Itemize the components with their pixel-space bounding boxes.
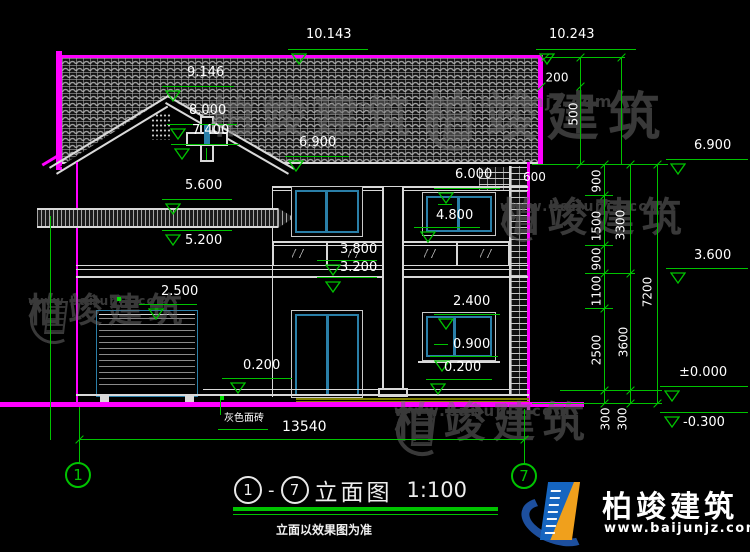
plinth-top-line [203,389,529,390]
level-text-±0.000: ±0.000 [679,366,727,380]
railing-post-4 [508,241,510,266]
dim-text-2500: 2500 [590,335,603,366]
title-axis-from: 1 [243,481,253,499]
level-text-5.200: 5.200 [185,234,222,248]
railing-glass-hatch-3 [424,249,437,258]
roof-left-fascia [56,51,62,170]
elevation-drawing-canvas: 1 7 1 - 7 立面图 1:100 立面以效果图为准 柏竣建筑 www.ba… [0,0,750,552]
level-text-10.143: 10.143 [306,28,352,42]
dim-text-overall-width: 13540 [282,420,327,435]
level-marker-icon [230,379,246,398]
brand-logo: 柏竣建筑 www.baijunjz.com [518,480,750,550]
dimension-line [220,398,221,415]
level-marker-icon [174,145,190,164]
dim-text-7200: 7200 [641,277,654,308]
level-marker-icon [664,387,680,406]
dim-chain-line [604,164,605,403]
dim-text-1100: 1100 [590,276,603,307]
axis-bubble-left-label: 1 [73,466,83,484]
level-text-3.200: 3.200 [340,261,377,275]
watermark-url-text: www.baijunjz.com [394,402,571,422]
floor-slab-line-3 [76,276,528,278]
title-axis-to: 7 [290,481,300,499]
title-axis-to-circle: 7 [281,476,309,504]
level-text-2.400: 2.400 [453,295,490,309]
level-text-6.900: 6.900 [299,136,336,150]
level-text-0.200: 0.200 [243,359,280,373]
level-marker-icon [420,228,436,247]
dimension-line [532,164,668,165]
entry-door-mullion [326,314,329,396]
wall-base-line [76,394,529,396]
level-text-9.146: 9.146 [187,66,224,80]
dim-text-600: 600 [523,171,546,184]
level-marker-icon [165,87,181,106]
level-marker-icon [438,189,454,208]
level-marker-icon [664,413,680,432]
title-note: 立面以效果图为准 [276,521,372,538]
level-text-6.900: 6.900 [694,139,731,153]
dimension-line [560,390,662,391]
title-underline-thin [233,514,498,515]
dimension-line [532,403,662,404]
watermark-url-text: www.baijunjz.com [500,198,665,216]
level-text--0.300: -0.300 [683,416,725,430]
level-marker-icon [325,278,341,297]
grip-dot [220,396,224,400]
level-text-3.600: 3.600 [694,249,731,263]
watermark-url-text: www.baijunjz.com [210,96,387,116]
dim-text-500: 500 [567,103,580,126]
level-text-8.000: 8.000 [189,104,226,118]
dimension-line [50,216,51,440]
railing-post-1 [272,241,274,266]
level-marker-icon [165,231,181,250]
level-marker-icon [170,125,186,144]
brand-logo-url: www.baijunjz.com [604,521,750,536]
level-text-4.800: 4.800 [436,209,473,223]
level-marker-icon [288,157,304,176]
dimension-line [206,148,207,160]
window-2f-left-mullion [325,190,328,233]
level-marker-icon [670,269,686,288]
title-scale: 1:100 [407,478,468,502]
railing-glass-hatch-4 [480,249,493,258]
dimension-line [585,195,613,196]
dimension-line [621,57,622,164]
dim-text-900: 900 [590,170,603,193]
brand-logo-name: 柏竣建筑 [602,482,738,526]
railing-post-3 [456,242,458,266]
railing-glass-hatch-1 [292,249,305,258]
level-text-5.600: 5.600 [185,179,222,193]
dim-text-200: 200 [546,71,569,84]
dim-chain-line [657,164,658,403]
level-marker-icon [438,315,454,334]
level-text-6.000: 6.000 [455,168,492,182]
dim-chain-line [630,164,631,403]
dimension-line [218,429,268,430]
dimension-line [434,344,448,345]
level-text-3.800: 3.800 [340,243,377,257]
gable-vent-grille [151,113,171,140]
dim-text-3300: 3300 [614,210,627,241]
drawing-title: 1 - 7 立面图 1:100 [234,476,467,504]
level-text-7.400: 7.400 [192,124,229,138]
axis-bubble-left: 1 [65,462,91,488]
dim-text-1500: 1500 [590,211,603,242]
material-label-gray-brick: 灰色面砖 [224,413,264,424]
dimension-line [585,308,613,309]
watermark-url-text: www.baijunjz.com [424,92,613,113]
title-name: 立面图 [315,473,393,507]
title-dash: - [268,480,275,501]
level-marker-icon [165,200,181,219]
dim-text-900: 900 [590,248,603,271]
level-marker-icon [291,50,307,69]
dim-text-300: 300 [616,408,629,431]
title-underline-thick [233,507,498,511]
garage-canopy [37,208,278,228]
dimension-line [79,407,80,463]
left-wall-edge [76,162,78,404]
level-marker-icon [670,160,686,179]
floor-slab-line-2 [76,269,528,270]
level-text-2.500: 2.500 [161,285,198,299]
dimension-line [79,439,525,440]
floor-slab-line-1 [76,265,528,266]
level-marker-icon [539,50,555,69]
dimension-line [585,245,613,246]
facade-pier [382,187,404,390]
dim-text-3600: 3600 [617,327,630,358]
dimension-line [545,57,625,58]
level-text-0.900: 0.900 [453,338,490,352]
level-text-10.243: 10.243 [549,28,595,42]
level-marker-icon [148,305,164,324]
grip-dot [117,297,121,301]
level-text-0.200: 0.200 [444,361,481,375]
title-axis-from-circle: 1 [234,476,262,504]
level-marker-icon [430,380,446,399]
dim-text-300: 300 [599,408,612,431]
